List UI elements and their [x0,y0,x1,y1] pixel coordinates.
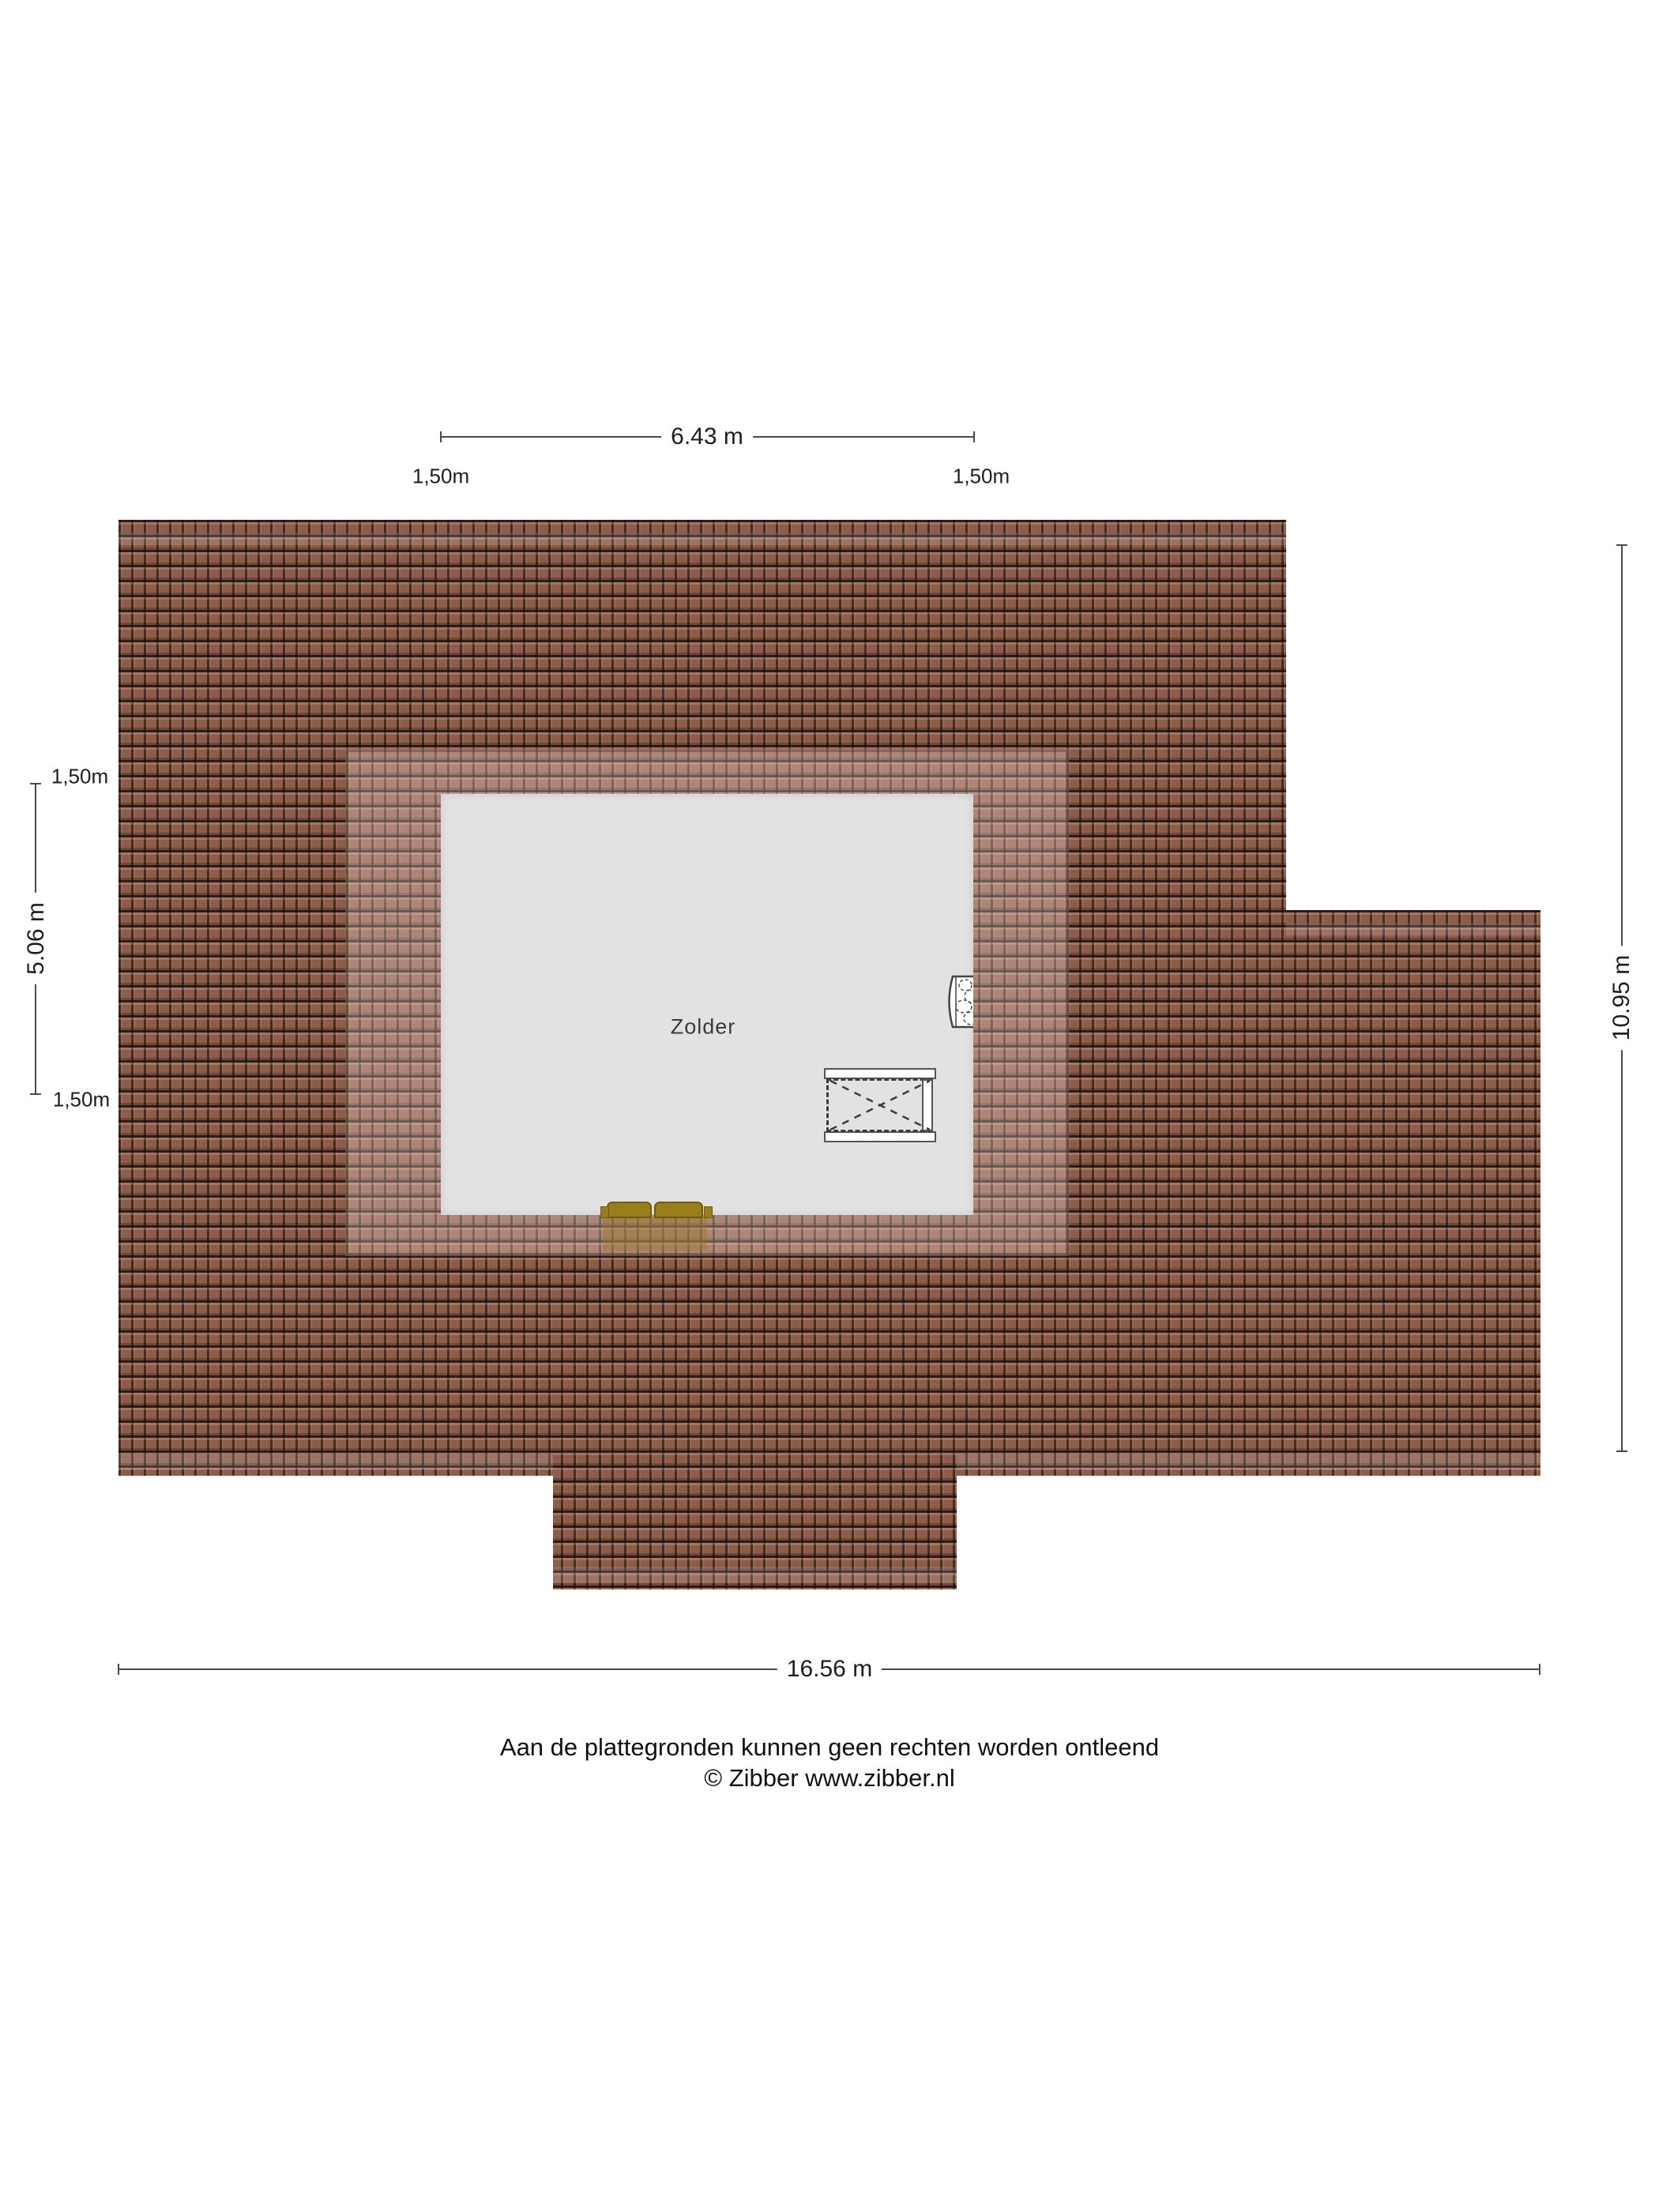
dimension-tick [30,1093,41,1095]
room-label: Zolder [671,1015,736,1040]
floorplan-page: { "floorplan": { "room_label": "Zolder",… [0,0,1659,2212]
roof-ridge-highlight-right [1286,923,1540,935]
stairs-icon [824,1068,936,1142]
dimension-label-top: 6.43 m [661,422,753,452]
boiler-icon [943,975,973,1029]
sofa-icon [654,1202,703,1218]
roof-ridge-highlight [118,532,1286,545]
offset-label-left-upper: 1,50m [51,765,108,789]
sofa-armrest [600,1206,609,1218]
offset-label-left-lower: 1,50m [53,1088,110,1112]
dimension-label-left: 5.06 m [21,893,51,984]
dimension-tick [1616,544,1627,546]
dimension-tick [973,431,975,442]
roof-eave-highlight-left [118,1455,553,1469]
dimension-tick [30,783,41,784]
dimension-label-right: 10.95 m [1607,946,1637,1050]
sofa-armrest [704,1206,713,1218]
room-zolder: Zolder [441,794,973,1215]
dimension-tick [118,1664,119,1675]
dimension-label-bottom: 16.56 m [777,1654,882,1684]
dimension-tick [1616,1450,1627,1452]
roof-eave-highlight-right [957,1455,1540,1469]
sofa-shadow [603,1217,707,1251]
footer-disclaimer: Aan de plattegronden kunnen geen rechten… [0,1732,1659,1762]
stairs-cross-lines [824,1068,936,1142]
offset-label-top-right: 1,50m [953,465,1010,489]
dimension-tick [1539,1664,1540,1675]
footer: Aan de plattegronden kunnen geen rechten… [0,1732,1659,1793]
roof-eave-highlight-bottom [553,1567,957,1583]
offset-label-top-left: 1,50m [412,465,469,489]
dimension-tick [440,431,442,442]
sofa-icon [607,1202,652,1218]
footer-copyright: © Zibber www.zibber.nl [0,1762,1659,1793]
